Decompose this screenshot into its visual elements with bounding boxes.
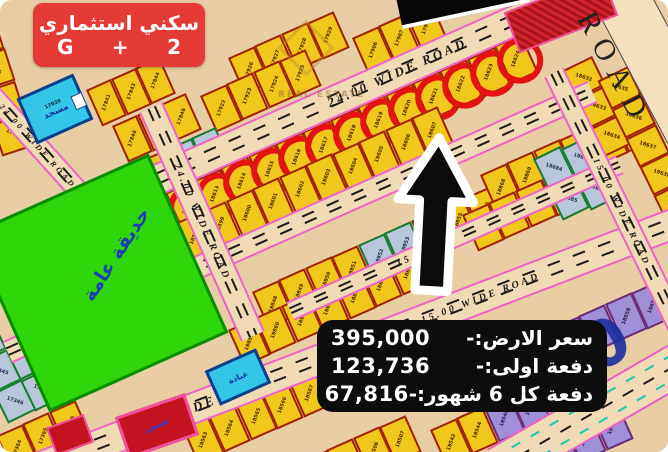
plot-number: 18615 [264,160,276,178]
plot-number: 17907 [394,29,406,47]
plot-number: 18602 [295,180,307,198]
price-value: 395,000 [331,326,430,350]
plot-number: 17844 [150,72,162,90]
plot-number: 18613 [209,184,221,202]
plot-number: 18869 [522,166,534,184]
plot-number: 17848 [176,108,188,126]
plot-number: 17846 [127,130,139,148]
price-box: سعر الارض:- 395,000 دفعة اولى:- 123,736 … [317,320,607,412]
plot-number: 18860 [270,321,282,339]
plot-number: 18604 [348,157,360,175]
listing-floors: G + 2 [33,35,205,59]
plot-number: 18634 [603,130,621,141]
plot-number: 17922 [216,99,228,117]
plot-number: 17835 [0,64,2,77]
plot-number: 18565 [251,408,263,426]
plot-number: 17843 [125,83,137,101]
plot-number: 18563 [198,431,210,449]
plot-number: 18605 [374,145,386,163]
price-row-installment: دفعة كل 6 شهور:- 67,816 [331,380,593,408]
plot-number: 18616 [291,148,303,166]
plot-number: 18600 [242,204,254,222]
plot-number: 18617 [319,136,331,154]
plot-number: 18621 [429,87,441,105]
worship-label: عبادة [227,369,249,386]
plot-number: 18507 [395,430,407,448]
plot-number: 18564 [224,419,236,437]
plot-number: 18544 [472,421,484,439]
plot-number: 17346 [6,396,24,407]
plot-number: 18620 [401,99,413,117]
plot-number: 18623 [483,62,495,80]
plot-number: 17841 [101,94,113,112]
price-label: دفعة كل 6 شهور:- [409,382,593,406]
floors-plus: + [112,35,129,59]
plot-number: 17345 [0,365,9,376]
plot-number: 18567 [304,384,316,402]
floors-count: 2 [167,35,181,59]
plot-number: 18619 [374,111,386,129]
plot-number: 18614 [237,172,249,190]
highlight-arrow-icon [386,128,485,304]
listing-type-title: سكني استثماري [33,11,205,35]
red-plot-label: مسجد [143,416,171,437]
price-row-downpayment: دفعة اولى:- 123,736 [331,352,593,380]
plot-number: 17906 [368,41,380,59]
plot-number: 17923 [242,87,254,105]
plot-number: 18638 [653,169,668,180]
listing-type-badge: سكني استثماري G + 2 [33,3,205,67]
plot-number: 18618 [346,123,358,141]
red-plot-bottom: مسجد [115,393,199,452]
price-label: سعر الارض:- [466,326,593,350]
listing-image: حديقة عامة 17829 مسجد عبادة مسجد ROAD 00… [0,0,668,452]
plot-number: 18566 [277,396,289,414]
mosque-annex-icon [70,92,87,111]
plot-number: 18622 [456,75,468,93]
park-label: حديقة عامة [78,203,155,305]
floors-ground: G [57,35,73,59]
plot-number: 18542 [446,433,458,451]
plot-number: 18684 [545,162,563,173]
price-label: دفعة اولى:- [476,354,593,378]
plot-number: 18546 [499,410,511,428]
price-value: 123,736 [331,354,430,378]
plot-number: 18637 [639,140,657,151]
plot-number: 18603 [321,169,333,187]
plot-number: 18506 [369,442,381,452]
plot-number: 18601 [268,192,280,210]
watermark-text: REAL ESTATE [278,90,366,100]
price-value: 67,816 [325,382,409,406]
plot-number: 17364 [12,439,24,452]
price-row-land: سعر الارض:- 395,000 [331,324,593,352]
